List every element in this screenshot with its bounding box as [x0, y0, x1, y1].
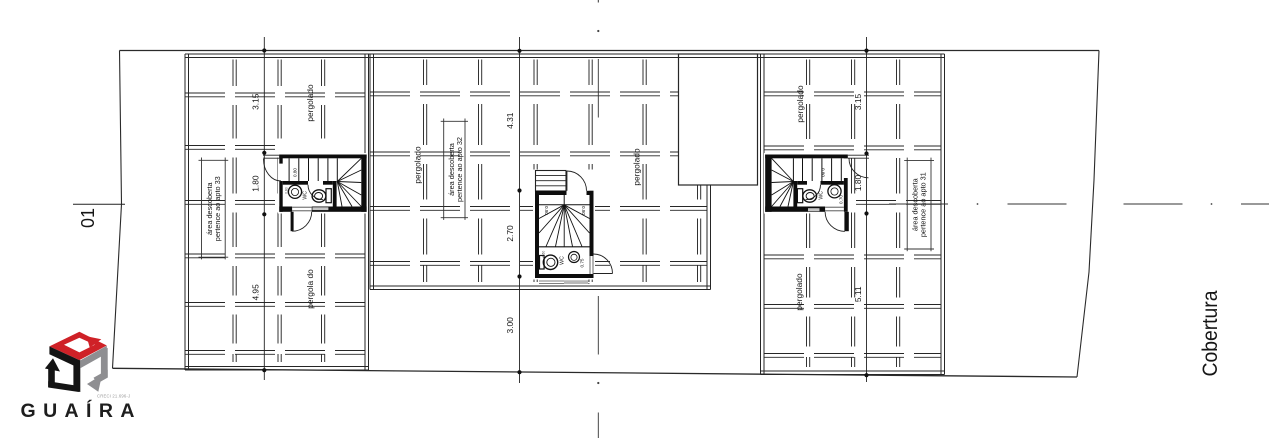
svg-text:1.80: 1.80	[853, 175, 863, 192]
svg-text:Cobertura: Cobertura	[1199, 290, 1222, 376]
svg-text:0.60: 0.60	[542, 251, 546, 258]
svg-text:5.11: 5.11	[853, 286, 863, 302]
svg-text:WC: WC	[303, 191, 309, 200]
svg-text:1.80: 1.80	[251, 175, 261, 192]
svg-text:pergolado: pergolado	[305, 84, 315, 122]
svg-text:WC: WC	[819, 191, 825, 200]
svg-text:0.60: 0.60	[285, 187, 289, 194]
svg-text:pergolado: pergolado	[413, 146, 423, 184]
svg-text:GUAÍRA: GUAÍRA	[21, 399, 142, 422]
svg-text:3.15: 3.15	[251, 93, 261, 110]
svg-text:WC: WC	[560, 256, 566, 265]
svg-text:CRECI 21.696-J: CRECI 21.696-J	[97, 394, 130, 399]
svg-text:01: 01	[78, 208, 98, 228]
svg-text:0.80: 0.80	[292, 168, 297, 177]
svg-text:pertence ao apto 33: pertence ao apto 33	[213, 176, 222, 241]
svg-text:pergola do: pergola do	[305, 269, 315, 309]
svg-text:pergolado: pergolado	[794, 273, 804, 311]
svg-text:2.70: 2.70	[505, 225, 515, 242]
svg-text:0.75: 0.75	[580, 258, 585, 267]
svg-text:pergolado: pergolado	[795, 85, 805, 123]
svg-text:4.95: 4.95	[251, 284, 261, 301]
svg-text:0.70: 0.70	[839, 195, 844, 204]
svg-text:3.15: 3.15	[853, 94, 863, 111]
svg-text:0.80: 0.80	[821, 168, 826, 177]
svg-text:pertence ao apto 32: pertence ao apto 32	[455, 137, 464, 202]
svg-text:4.31: 4.31	[505, 112, 515, 129]
svg-text:pertence ao apto 31: pertence ao apto 31	[919, 172, 928, 237]
svg-text:pergolado: pergolado	[632, 148, 642, 186]
svg-text:3.00: 3.00	[505, 317, 515, 334]
